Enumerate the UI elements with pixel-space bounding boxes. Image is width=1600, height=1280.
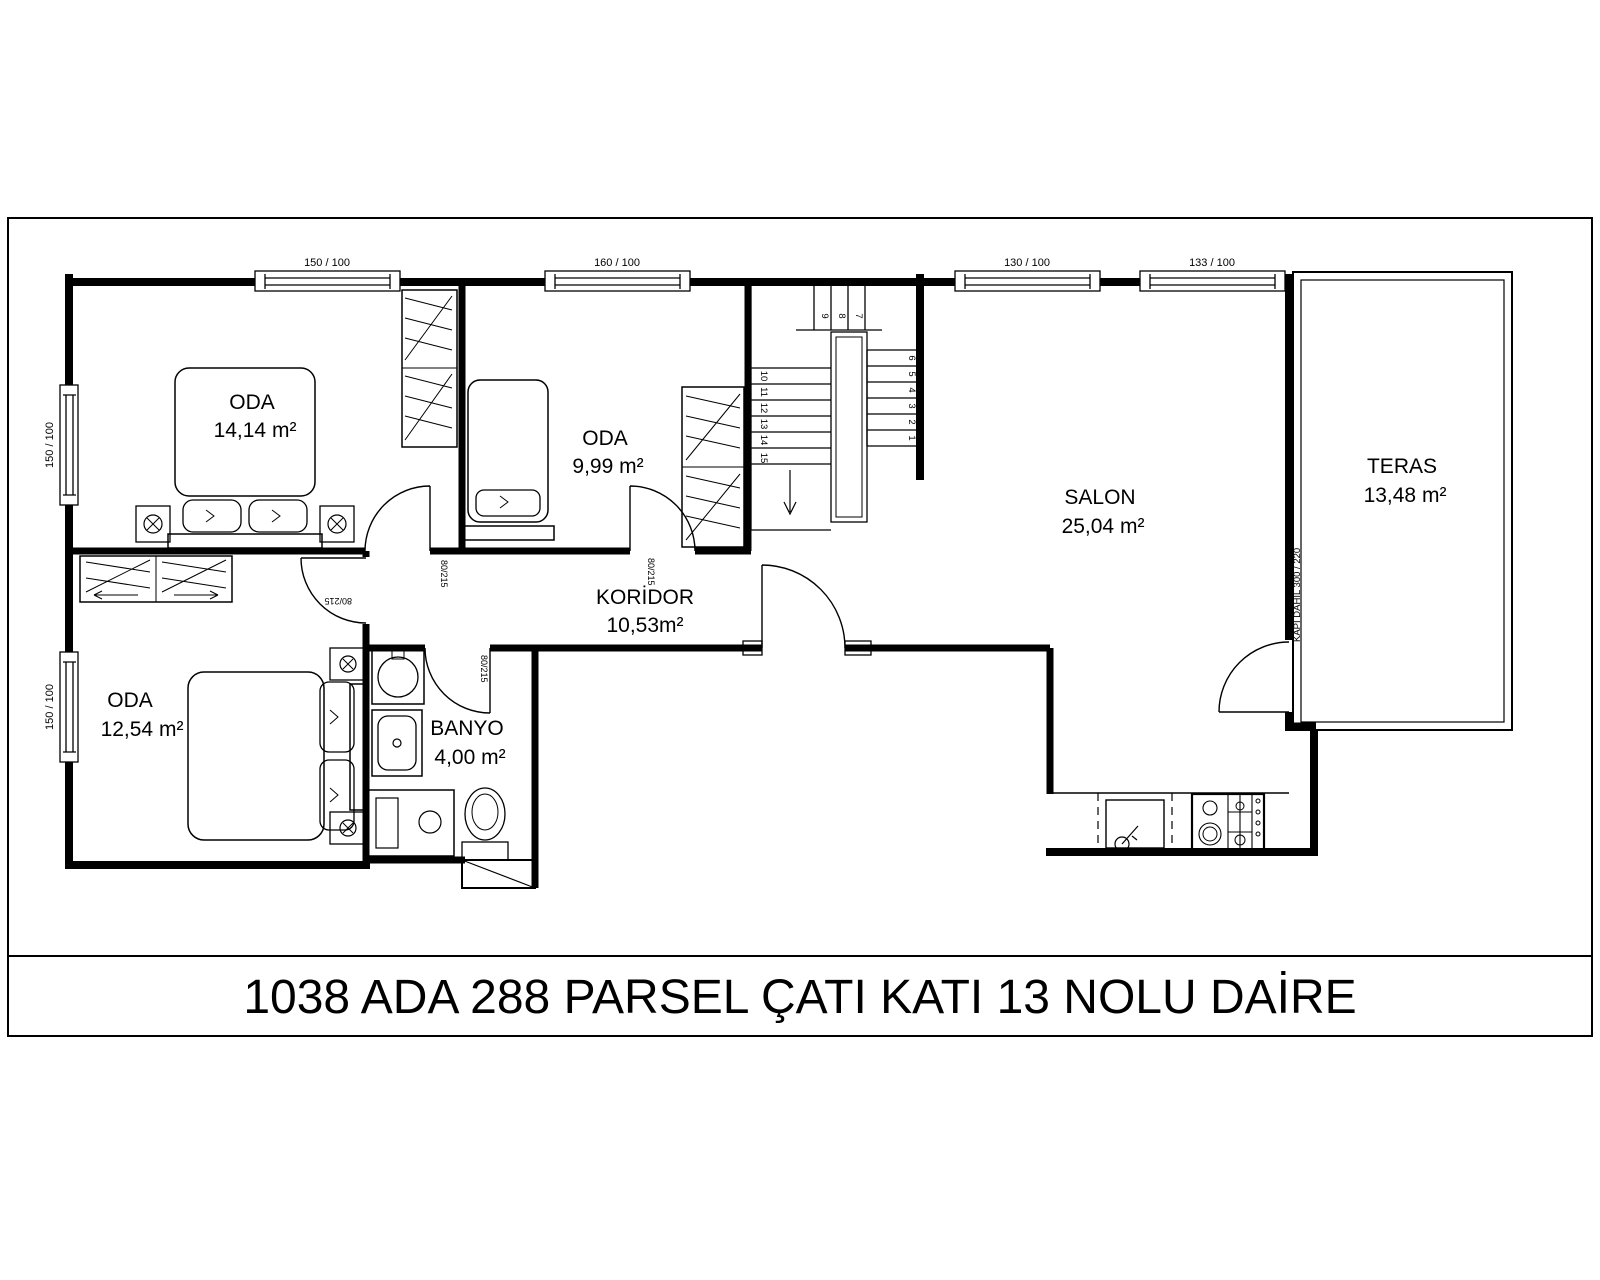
window-size-label: 133 / 100: [1189, 257, 1235, 269]
door-arc-teras: [1219, 642, 1289, 712]
door-arc-entry: [762, 565, 845, 648]
window-symbol-top4: 133 / 100: [1140, 257, 1285, 291]
washbasin-icon: [372, 650, 424, 704]
room-area-label: 13,48 m²: [1364, 484, 1447, 507]
door-size-label: 80/215: [324, 596, 352, 606]
exterior-walls: [65, 274, 1318, 869]
room-oda3: ODA 12,54 m²: [80, 556, 366, 844]
stair-step-number: 4: [906, 387, 917, 392]
door-arc-oda3: 80/215: [301, 558, 366, 623]
room-name-label: BANYO: [430, 717, 504, 740]
door-size-label: 80/215: [479, 655, 489, 683]
window-symbol-left2: 150 / 100: [44, 652, 78, 762]
stair-step-number: 11: [758, 387, 769, 397]
stair-step-number: 5: [906, 371, 917, 376]
toilet-icon: [462, 788, 508, 860]
floor-plan-canvas: 1038 ADA 288 PARSEL ÇATI KATI 13 NOLU DA…: [0, 0, 1600, 1280]
room-area-label: 4,00 m²: [434, 746, 505, 769]
room-area-label: 10,53m²: [606, 614, 683, 637]
window-symbol-top2: 160 / 100: [545, 257, 690, 291]
door-size-label: 80/215: [439, 560, 449, 588]
room-teras: TERAS 13,48 m² KAPI DAHİL 300 / 220: [1292, 272, 1512, 730]
room-name-label: TERAS: [1367, 455, 1437, 478]
nightstand-symbol: [136, 506, 170, 542]
plan-title: 1038 ADA 288 PARSEL ÇATI KATI 13 NOLU DA…: [243, 971, 1356, 1024]
stair-step-number: 3: [906, 403, 917, 408]
washing-machine-icon: [368, 790, 454, 856]
room-name-label: ODA: [229, 391, 275, 414]
window-symbol-top3: 130 / 100: [955, 257, 1100, 291]
stair-step-number: 14: [758, 435, 769, 446]
headboard: [462, 526, 554, 540]
room-koridor: KORİDOR 10,53m²: [596, 586, 694, 637]
pillow: [320, 682, 354, 752]
window-size-label: 130 / 100: [1004, 257, 1050, 269]
window-size-label: 150 / 100: [304, 257, 350, 269]
door-size-label: 80/215: [646, 558, 656, 586]
stair-step-number: 13: [758, 419, 769, 430]
stair-step-number: 8: [836, 313, 847, 318]
stair-step-number: 2: [906, 419, 917, 424]
plan-frame: 1038 ADA 288 PARSEL ÇATI KATI 13 NOLU DA…: [8, 218, 1592, 1036]
kitchen-counter: [1050, 793, 1289, 852]
pillow: [476, 490, 540, 516]
wardrobe-symbol: [682, 387, 744, 547]
room-area-label: 12,54 m²: [101, 718, 184, 741]
room-name-label: ODA: [582, 427, 628, 450]
staircase: 1 2 3 4 5 6 7 8 9 10 11 12 13 14 15: [751, 286, 917, 530]
nightstand-symbol: [330, 648, 366, 680]
window-size-label: 150 / 100: [44, 422, 56, 468]
window-size-label: 150 / 100: [44, 684, 56, 730]
nightstand-symbol: [330, 812, 366, 844]
sink-counter-icon: [372, 710, 422, 776]
stair-step-number: 12: [758, 403, 769, 414]
nightstand-symbol: [320, 506, 354, 542]
room-name-label: KORİDOR: [596, 586, 694, 609]
drawing-border: [8, 218, 1592, 956]
headboard: [168, 534, 322, 548]
stair-step-number: 6: [906, 355, 917, 360]
stair-step-number: 7: [853, 313, 864, 318]
double-bed-symbol: [188, 672, 366, 840]
single-bed-symbol: [462, 380, 554, 540]
kitchen-sink-icon: [1106, 800, 1164, 851]
pillow: [183, 500, 241, 532]
dishwasher-dashed-outline: [1098, 793, 1172, 852]
floor-plan-page: 1038 ADA 288 PARSEL ÇATI KATI 13 NOLU DA…: [0, 0, 1600, 1280]
door-arc-oda2: 80/215: [630, 486, 695, 586]
teras-door-note: KAPI DAHİL 300 / 220: [1292, 548, 1303, 642]
room-salon: SALON 25,04 m²: [1050, 486, 1289, 852]
stair-step-number: 10: [758, 371, 769, 382]
stair-step-number: 15: [758, 453, 769, 464]
room-oda1: ODA 14,14 m²: [136, 290, 457, 548]
door-arc-banyo: 80/215: [425, 648, 490, 713]
stair-void-inner: [836, 337, 862, 517]
wardrobe-symbol: [80, 556, 232, 602]
window-symbol-top1: 150 / 100: [255, 257, 400, 291]
stair-direction-arrow: [784, 470, 796, 514]
room-area-label: 25,04 m²: [1062, 515, 1145, 538]
duct-shaft-hatch: [462, 860, 535, 888]
room-area-label: 9,99 m²: [572, 455, 643, 478]
stove-icon: [1192, 794, 1264, 850]
room-name-label: ODA: [107, 689, 153, 712]
stair-step-number: 9: [819, 313, 830, 318]
room-oda2: ODA 9,99 m²: [462, 380, 744, 547]
door-arc-oda1: 80/215: [365, 486, 449, 588]
interior-walls: [65, 282, 1316, 888]
window-size-label: 160 / 100: [594, 257, 640, 269]
stair-step-number: 1: [906, 435, 917, 440]
pillow: [249, 500, 307, 532]
room-name-label: SALON: [1064, 486, 1135, 509]
window-symbol-left1: 150 / 100: [44, 385, 78, 505]
wardrobe-symbol: [402, 290, 457, 447]
room-area-label: 14,14 m²: [214, 419, 297, 442]
